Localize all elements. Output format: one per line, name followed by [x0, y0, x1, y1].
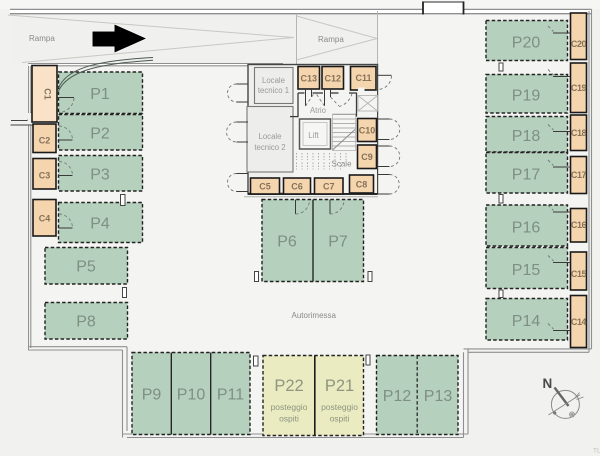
svg-text:C6: C6 [291, 182, 303, 192]
svg-text:C3: C3 [39, 171, 51, 181]
svg-text:tecnico 2: tecnico 2 [254, 143, 285, 152]
svg-text:Locale: Locale [262, 76, 285, 85]
svg-text:P17: P17 [512, 167, 541, 184]
svg-text:C16: C16 [571, 220, 587, 230]
svg-text:posteggio: posteggio [271, 402, 308, 412]
svg-text:C9: C9 [361, 152, 373, 162]
svg-text:Autorimessa: Autorimessa [292, 311, 337, 320]
svg-text:P4: P4 [90, 216, 110, 233]
svg-text:P9: P9 [142, 387, 162, 404]
svg-text:Scale: Scale [332, 160, 353, 169]
svg-text:N: N [543, 376, 553, 391]
svg-text:Lift: Lift [308, 131, 319, 140]
svg-text:P12: P12 [383, 388, 412, 405]
svg-text:Rampa: Rampa [29, 34, 55, 43]
svg-text:C14: C14 [571, 317, 587, 327]
svg-text:C2: C2 [39, 136, 51, 146]
svg-text:C4: C4 [39, 214, 51, 224]
svg-text:C13: C13 [301, 74, 318, 84]
svg-text:C5: C5 [259, 182, 271, 192]
svg-text:P11: P11 [217, 387, 244, 404]
svg-text:tecnico 1: tecnico 1 [258, 86, 289, 95]
svg-text:C12: C12 [325, 74, 342, 84]
svg-text:C7: C7 [323, 182, 335, 192]
svg-text:P18: P18 [512, 128, 541, 145]
svg-text:C20: C20 [571, 39, 587, 49]
svg-text:C10: C10 [359, 126, 376, 136]
svg-text:ospiti: ospiti [330, 414, 350, 424]
svg-text:P5: P5 [76, 259, 96, 276]
svg-text:C8: C8 [356, 180, 368, 190]
svg-text:C15: C15 [571, 269, 587, 279]
svg-text:P7: P7 [328, 234, 348, 251]
svg-text:posteggio: posteggio [321, 402, 358, 412]
svg-text:Rampa: Rampa [318, 35, 344, 44]
svg-text:C1: C1 [43, 88, 53, 100]
svg-text:P2: P2 [90, 126, 110, 143]
svg-text:P3: P3 [90, 167, 110, 184]
svg-text:Locale: Locale [259, 132, 282, 141]
svg-text:C18: C18 [571, 128, 587, 138]
svg-text:P6: P6 [277, 234, 297, 251]
svg-text:C19: C19 [571, 83, 587, 93]
svg-text:Atrio: Atrio [310, 106, 327, 115]
svg-text:C11: C11 [355, 73, 371, 83]
svg-text:ospiti: ospiti [279, 414, 299, 424]
svg-text:P8: P8 [76, 314, 96, 331]
svg-text:P20: P20 [512, 35, 541, 52]
svg-text:P10: P10 [177, 387, 206, 404]
svg-text:P15: P15 [512, 262, 541, 279]
svg-text:P1: P1 [90, 86, 110, 103]
svg-text:P22: P22 [274, 377, 303, 395]
svg-text:P21: P21 [325, 377, 354, 395]
svg-text:P13: P13 [424, 388, 453, 405]
svg-text:P14: P14 [512, 313, 541, 330]
svg-text:P16: P16 [512, 220, 541, 237]
svg-text:TL: TL [593, 448, 600, 455]
svg-text:C17: C17 [571, 170, 587, 180]
svg-text:P19: P19 [512, 88, 541, 105]
